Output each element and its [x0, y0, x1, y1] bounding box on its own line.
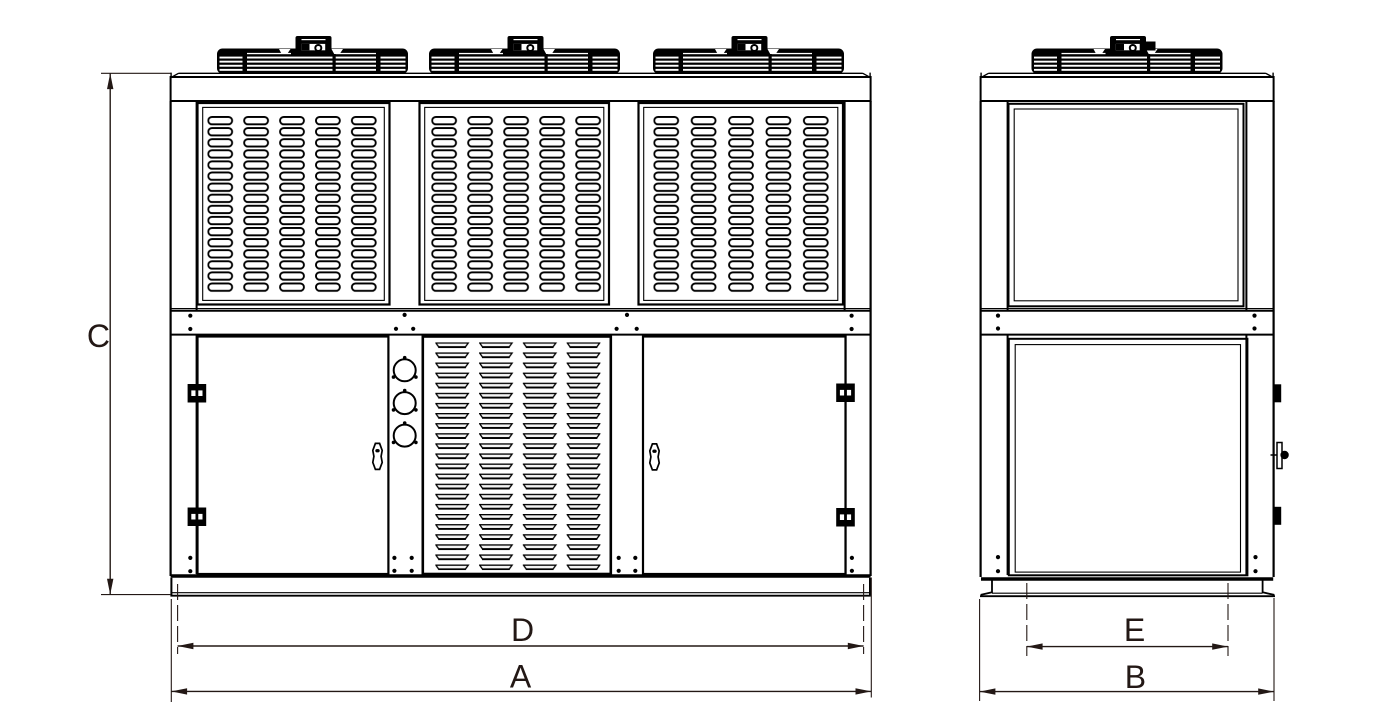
svg-text:D: D: [511, 612, 534, 648]
svg-text:A: A: [510, 658, 532, 694]
svg-text:C: C: [87, 318, 110, 354]
svg-text:E: E: [1124, 612, 1145, 648]
svg-text:B: B: [1125, 659, 1146, 695]
